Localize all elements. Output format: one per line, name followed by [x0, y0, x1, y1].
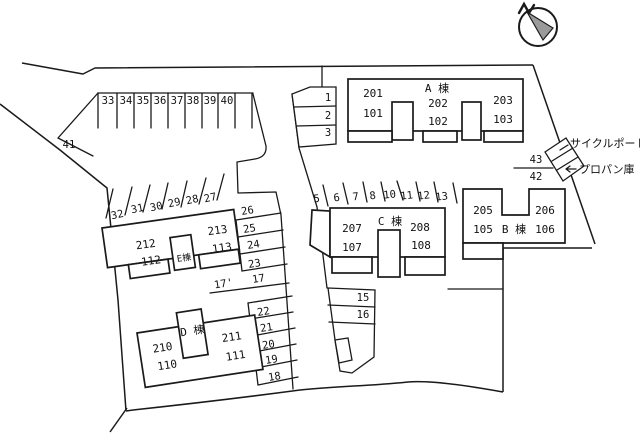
parking-block-1516: 15 16 — [328, 288, 375, 373]
parking-row-c-north: 5 6 7 8 10 11 12 13 — [313, 181, 457, 206]
building-e: 212 112 213 113 E棟 — [102, 209, 241, 281]
unit-112: 112 — [140, 253, 161, 269]
stall-32-label: 32 — [110, 208, 125, 222]
unit-108: 108 — [411, 239, 431, 252]
building-a-ext-left — [348, 131, 392, 142]
stall-30-label: 30 — [149, 200, 164, 214]
stall-3-label: 3 — [325, 127, 331, 139]
compass — [519, 4, 557, 46]
stall-13-label: 13 — [435, 190, 449, 203]
building-c-west-cap — [310, 210, 330, 257]
stall-2-label: 2 — [325, 110, 331, 122]
stall-12-label: 12 — [417, 189, 431, 202]
stall-27-label: 27 — [203, 191, 218, 205]
boundary-top — [22, 63, 533, 74]
stall-1-label: 1 — [325, 92, 331, 104]
stall-29-label: 29 — [167, 196, 182, 210]
stall-39-label: 39 — [204, 95, 217, 107]
unit-205: 205 — [473, 204, 493, 217]
building-a-ext-mid — [423, 131, 457, 142]
building-a-tower-2 — [462, 102, 481, 140]
stall-11-label: 11 — [400, 189, 414, 202]
stall-25-label: 25 — [242, 222, 256, 236]
building-a-tower-1 — [392, 102, 413, 140]
site-plan-map: 33 34 35 36 37 38 39 40 41 1 2 3 5 6 7 8… — [0, 0, 640, 438]
building-b-annex — [463, 243, 503, 259]
parking-block-123: 1 2 3 — [292, 66, 336, 147]
stall-20-label: 20 — [261, 338, 275, 352]
stall-24-label: 24 — [246, 238, 260, 252]
stall-33-label: 33 — [102, 95, 115, 107]
stall-10-label: 10 — [383, 188, 397, 201]
stall-41-label: 41 — [63, 139, 76, 151]
unit-106: 106 — [535, 223, 555, 236]
stall-16-label: 16 — [357, 309, 370, 321]
parking-row-top: 33 34 35 36 37 38 39 40 41 — [58, 93, 253, 156]
unit-203: 203 — [493, 94, 513, 107]
stall-26-label: 26 — [240, 204, 254, 218]
stall-8-label: 8 — [369, 190, 377, 203]
unit-208: 208 — [410, 221, 430, 234]
stall-22-label: 22 — [256, 305, 270, 319]
building-a: A 棟 201 101 202 102 203 103 — [348, 79, 523, 142]
stall-43-label: 43 — [530, 154, 543, 166]
propane-label: プロパン庫 — [579, 162, 635, 176]
building-c-ext-left — [332, 257, 372, 273]
unit-212: 212 — [135, 237, 156, 253]
stall-15-label: 15 — [357, 292, 370, 304]
stall-6-label: 6 — [333, 192, 341, 205]
building-c: C 棟 207 107 208 108 — [310, 208, 445, 277]
stall-37-label: 37 — [171, 95, 184, 107]
stall-28-label: 28 — [185, 193, 200, 207]
site-plan-page: 33 34 35 36 37 38 39 40 41 1 2 3 5 6 7 8… — [0, 0, 640, 438]
building-b-name: B 棟 — [502, 222, 526, 236]
stall-17-label: 17 — [251, 272, 265, 286]
stall-31-label: 31 — [130, 202, 145, 216]
row-top-chamfer — [58, 93, 98, 138]
unit-202: 202 — [428, 97, 448, 110]
road-tail-southwest — [110, 408, 127, 432]
stall-7-label: 7 — [352, 191, 360, 204]
stall-5-label: 5 — [313, 193, 321, 206]
stall-40-label: 40 — [221, 95, 234, 107]
unit-201: 201 — [363, 87, 383, 100]
stall-23-label: 23 — [247, 257, 261, 271]
unit-113: 113 — [211, 240, 232, 256]
unit-107: 107 — [342, 241, 362, 254]
stall-42-label: 42 — [530, 171, 543, 183]
stall-34-label: 34 — [120, 95, 133, 107]
stall-36-label: 36 — [154, 95, 167, 107]
building-c-name: C 棟 — [378, 214, 402, 228]
stall-38-label: 38 — [187, 95, 200, 107]
building-a-name: A 棟 — [425, 81, 449, 95]
stall-18-label: 18 — [267, 370, 281, 384]
boundary-bottom-curve — [126, 382, 503, 411]
boundary-inner-east — [503, 248, 592, 392]
east-facilities: サイクルポート プロパン庫 43 42 — [514, 137, 640, 183]
stall-19-label: 19 — [264, 353, 278, 367]
unit-207: 207 — [342, 222, 362, 235]
compass-needle — [527, 12, 553, 40]
building-c-tower — [378, 230, 400, 277]
stall-17p-label: 17' — [213, 277, 234, 292]
building-a-ext-right — [484, 131, 523, 142]
unit-213: 213 — [207, 223, 228, 239]
unit-206: 206 — [535, 204, 555, 217]
cycle-port-label: サイクルポート — [570, 137, 640, 150]
unit-102: 102 — [428, 115, 448, 128]
building-e-tower — [170, 235, 195, 271]
unit-103: 103 — [493, 113, 513, 126]
unit-101: 101 — [363, 107, 383, 120]
building-c-ext-right — [405, 257, 445, 275]
stall-21-label: 21 — [259, 321, 273, 335]
building-d: D 棟 210 110 211 111 — [135, 301, 263, 387]
unit-105: 105 — [473, 223, 493, 236]
stall-35-label: 35 — [137, 95, 150, 107]
